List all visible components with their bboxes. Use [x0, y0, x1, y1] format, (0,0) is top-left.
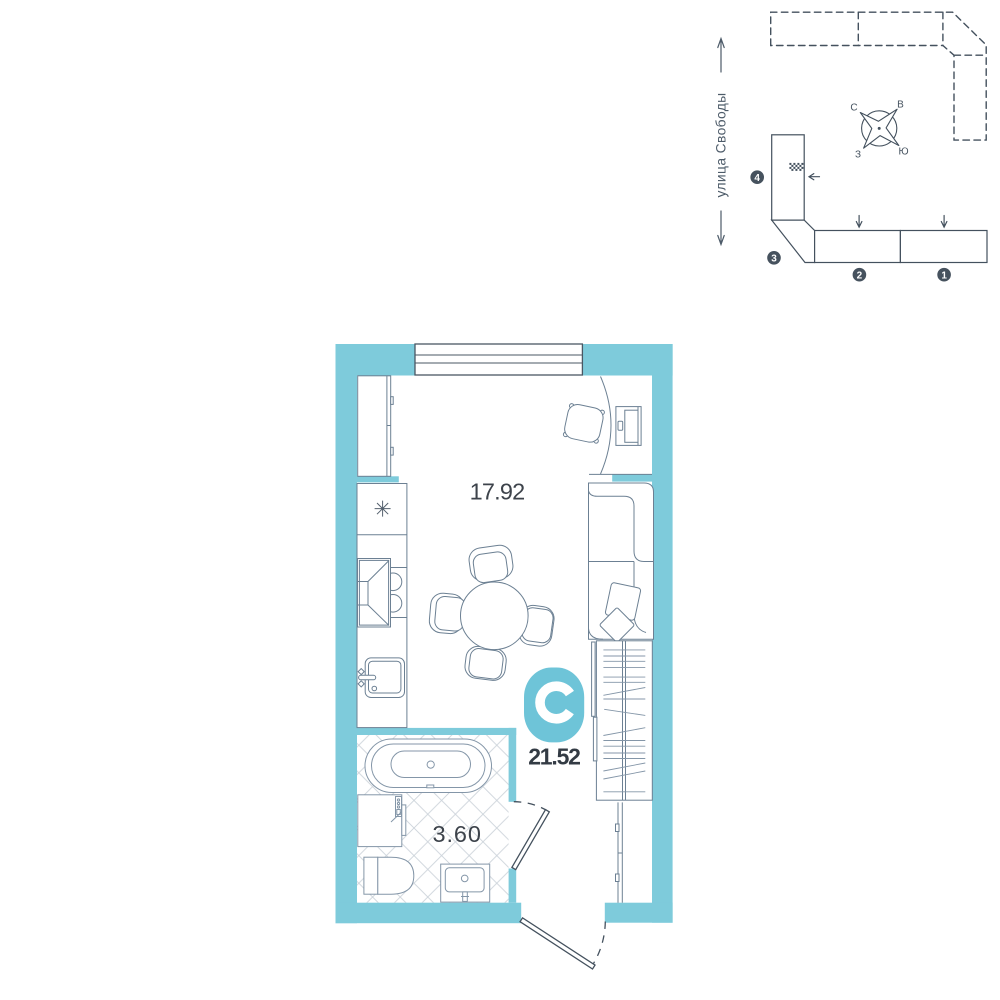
svg-text:З: З [855, 150, 861, 161]
svg-text:2: 2 [857, 270, 863, 281]
svg-text:3.60: 3.60 [433, 821, 482, 847]
svg-text:В: В [897, 100, 904, 111]
svg-text:Ю: Ю [898, 147, 908, 158]
svg-text:4: 4 [754, 173, 760, 184]
svg-text:3: 3 [771, 253, 777, 264]
svg-text:21.52: 21.52 [528, 743, 580, 769]
svg-text:С: С [850, 103, 857, 114]
svg-text:1: 1 [941, 270, 947, 281]
svg-text:улица Свободы: улица Свободы [714, 92, 729, 197]
svg-text:17.92: 17.92 [470, 479, 525, 505]
